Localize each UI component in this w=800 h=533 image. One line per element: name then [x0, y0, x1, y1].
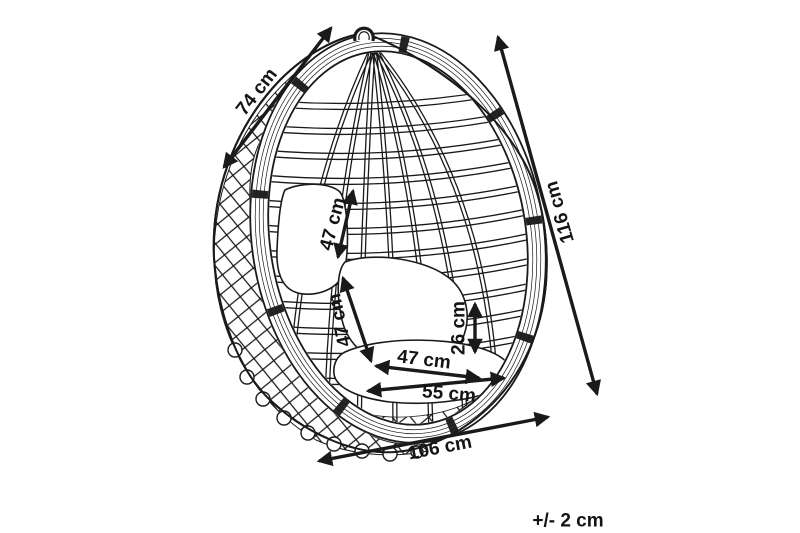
- tolerance-note: +/- 2 cm: [532, 511, 603, 532]
- hanging-loop-icon: [355, 28, 374, 41]
- label-26cm: 26 cm: [449, 301, 470, 355]
- egg-chair-dimension-diagram: 74 cm 116 cm 47 cm 47 cm 26 cm 47 cm 55 …: [0, 0, 800, 533]
- diagram-canvas: 74 cm 116 cm 47 cm 47 cm 26 cm 47 cm 55 …: [0, 0, 800, 533]
